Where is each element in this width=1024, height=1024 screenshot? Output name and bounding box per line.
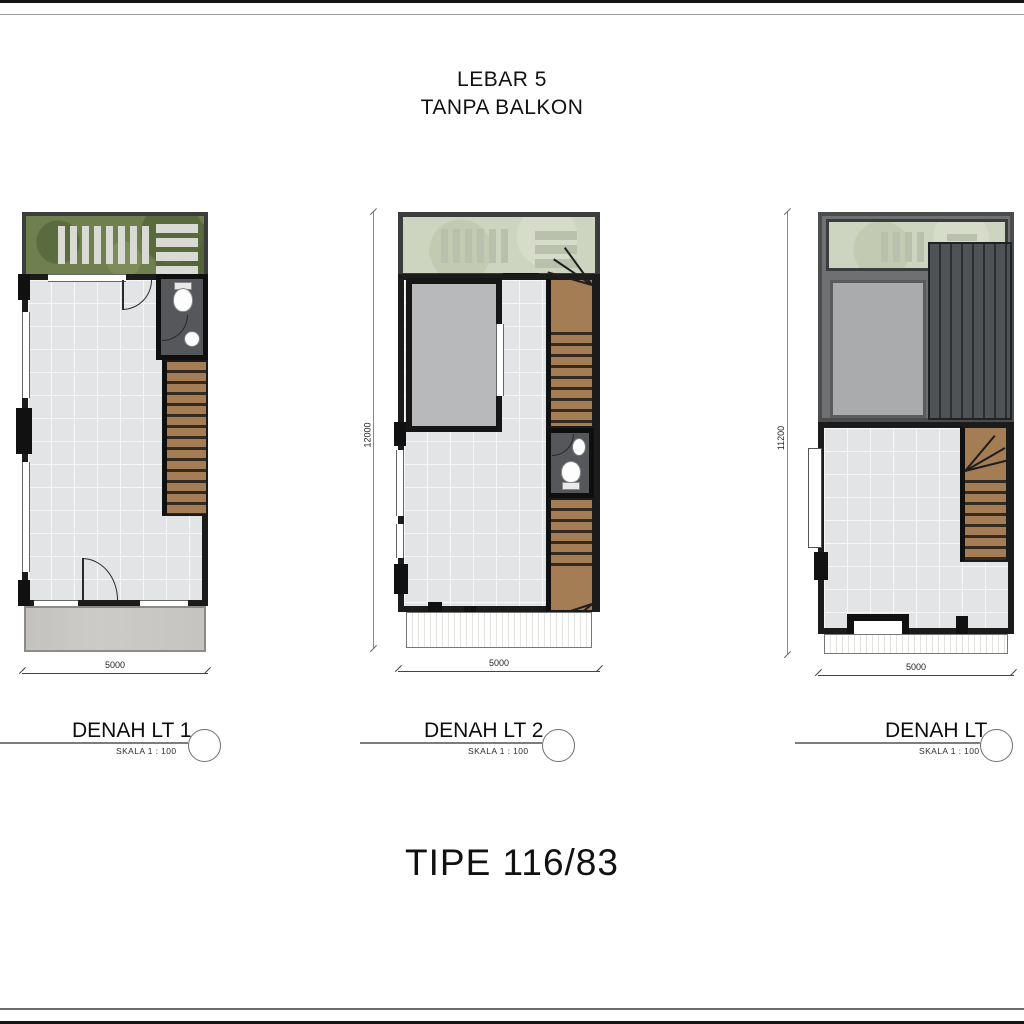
toilet-icon [561,461,581,483]
toilet-tank-icon [562,482,580,490]
floor-plan-lt1: 5000 [22,212,208,652]
stepping-stones-faint-horizontal [535,231,577,268]
roof-deck [830,280,926,418]
front-window [48,274,126,282]
wall-column [16,408,32,454]
stepping-stones-faint [441,229,508,263]
bedroom-sliding-door [496,324,504,396]
plan-scale-lt3: SKALA 1 : 100 [919,746,980,756]
stepping-stones-faint [881,232,924,262]
left-window-upper [396,450,404,516]
dimension-width-lt3: 5000 [818,666,1014,680]
roof-zone [818,212,1014,422]
label-lt3: DENAH LT SKALA 1 : 100 [795,718,1024,770]
wall-column [394,422,406,446]
dimension-height-lt3: 11200 [778,212,792,654]
dimension-height-lt2: 12000 [364,212,378,648]
type-title: TIPE 116/83 [262,842,762,884]
staircase-lower-lt2 [546,498,594,612]
terrace-door-leaf [82,558,84,600]
detail-bubble [188,729,221,762]
wall-column [18,274,30,300]
floor-plan-lt2: 12000 5000 [398,212,600,648]
plan-title-lt3: DENAH LT [885,719,987,743]
staircase-lt3 [960,426,1008,562]
bathroom-lt1 [156,274,208,360]
left-window-lower [396,524,404,558]
wall-column [394,564,408,594]
sink-icon [184,331,200,347]
staircase-upper-lt2 [546,278,594,428]
sink-icon [572,438,586,456]
stepping-stones-horizontal [156,224,198,275]
detail-bubble [980,729,1013,762]
plan-scale-lt1: SKALA 1 : 100 [116,746,177,756]
dimension-width-value: 5000 [22,660,208,670]
label-lt2: DENAH LT 2 SKALA 1 : 100 [360,718,600,770]
bedroom-lt2 [406,278,502,432]
front-garden [22,212,208,278]
dimension-width-value: 5000 [818,662,1014,672]
sheet-top-edge-line [0,0,1024,3]
bathroom-lt2 [546,428,594,498]
left-window-upper [22,312,30,398]
sheet-title: LEBAR 5 TANPA BALKON [352,66,652,122]
sheet-title-line1: LEBAR 5 [352,66,652,94]
dimension-width-lt2: 5000 [398,662,600,676]
dimension-height-value: 11200 [776,426,786,450]
detail-bubble [542,729,575,762]
drawing-sheet: LEBAR 5 TANPA BALKON [0,0,1024,1024]
dimension-width-value: 5000 [398,658,600,668]
wall-column [18,580,30,606]
plan-scale-lt2: SKALA 1 : 100 [468,746,529,756]
plan-title-lt1: DENAH LT 1 [72,719,191,743]
plan-title-lt2: DENAH LT 2 [424,719,543,743]
left-bay-window [808,448,822,548]
dimension-width-lt1: 5000 [22,664,208,678]
label-lt1: DENAH LT 1 SKALA 1 : 100 [0,718,240,770]
dimension-height-value: 12000 [363,422,373,447]
rear-terrace-lt2 [406,612,592,648]
stepping-stones-vertical [58,226,149,264]
rear-terrace-lt3 [824,634,1008,654]
ribbed-metal-roof [928,242,1012,420]
left-window-lower [22,462,30,572]
carport [24,606,206,652]
sheet-top-rule-line [0,14,1024,15]
sheet-bottom-rule-line [0,1008,1024,1010]
entry-door-leaf [122,280,124,310]
bathroom-door-swing [552,434,574,456]
sheet-title-line2: TANPA BALKON [352,94,652,122]
staircase-lt1 [162,360,208,516]
floor-plan-lt3: 11200 5000 [818,212,1014,654]
toilet-icon [173,288,193,312]
wall-column [814,552,828,580]
